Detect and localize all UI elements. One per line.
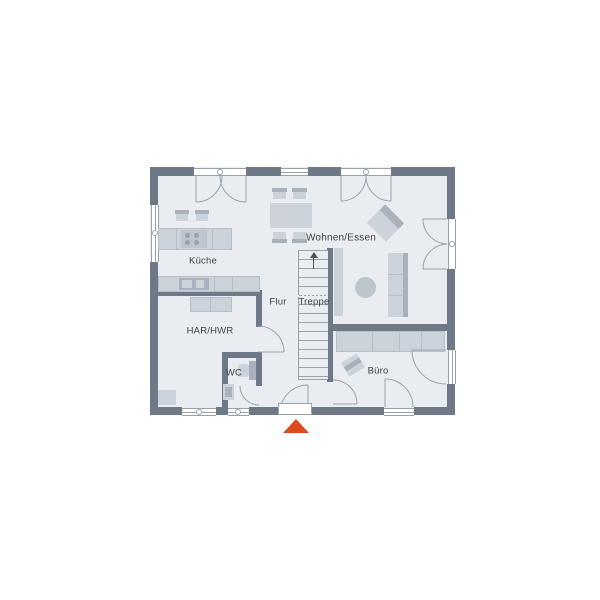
window-wc <box>228 408 249 416</box>
sofa <box>388 253 408 317</box>
kitchen-island <box>158 228 232 250</box>
dining-table <box>270 203 312 228</box>
sideboard <box>334 248 343 316</box>
dining-chair-1 <box>272 188 287 199</box>
patio-door-kitchen <box>194 168 246 176</box>
dining-chair-2 <box>292 188 307 199</box>
kitchen-sink <box>179 278 209 290</box>
window-top-dining <box>281 168 308 176</box>
dining-chair-3 <box>272 232 287 243</box>
door-office-bottom <box>384 408 414 416</box>
wall-top-3 <box>308 167 341 176</box>
office-desk <box>336 331 445 352</box>
wall-right-2 <box>447 269 455 350</box>
room-label-stairs: Treppe <box>299 297 330 308</box>
cooktop <box>181 230 207 248</box>
bar-stool-1 <box>175 210 189 221</box>
bar-stool-2 <box>195 210 209 221</box>
wc-sink <box>223 384 234 400</box>
wall-living-office <box>333 324 447 331</box>
wall-bottom-3 <box>249 407 278 415</box>
room-label-living-dining: Wohnen/Essen <box>306 233 376 244</box>
wall-top-2 <box>246 167 281 176</box>
wall-utility-hall <box>256 296 262 327</box>
door-office-right <box>448 350 456 384</box>
wall-bottom-5 <box>414 407 455 415</box>
room-label-wc: WC <box>226 368 242 379</box>
patio-door-living-right <box>448 219 456 269</box>
room-label-utility: HAR/HWR <box>187 326 234 337</box>
wall-bottom-1 <box>150 407 182 415</box>
dining-chair-4 <box>292 232 307 243</box>
wall-right-1 <box>447 167 455 219</box>
utility-cabinet <box>158 390 176 405</box>
room-label-kitchen: Küche <box>189 256 217 267</box>
floor-plan: Küche Wohnen/Essen Flur Treppe HAR/HWR W… <box>0 0 600 600</box>
wall-wc-right <box>256 358 262 386</box>
wall-top-4 <box>391 167 455 176</box>
washer-dryer <box>190 297 232 312</box>
wall-left-1 <box>150 167 158 205</box>
stair-direction-stem <box>313 257 314 269</box>
wall-left-2 <box>150 262 158 415</box>
window-utility <box>182 408 216 416</box>
coffee-table <box>355 277 376 298</box>
patio-door-living <box>341 168 391 176</box>
entrance-threshold <box>278 403 312 415</box>
room-label-hallway: Flur <box>269 297 286 308</box>
entrance-arrow-icon <box>283 419 309 433</box>
kitchen-counter <box>158 276 260 292</box>
room-label-office: Büro <box>368 366 389 377</box>
wall-bottom-4 <box>310 407 384 415</box>
stair-direction-arrow-icon <box>310 252 318 258</box>
wall-bottom-2 <box>216 407 228 415</box>
staircase <box>298 250 328 380</box>
